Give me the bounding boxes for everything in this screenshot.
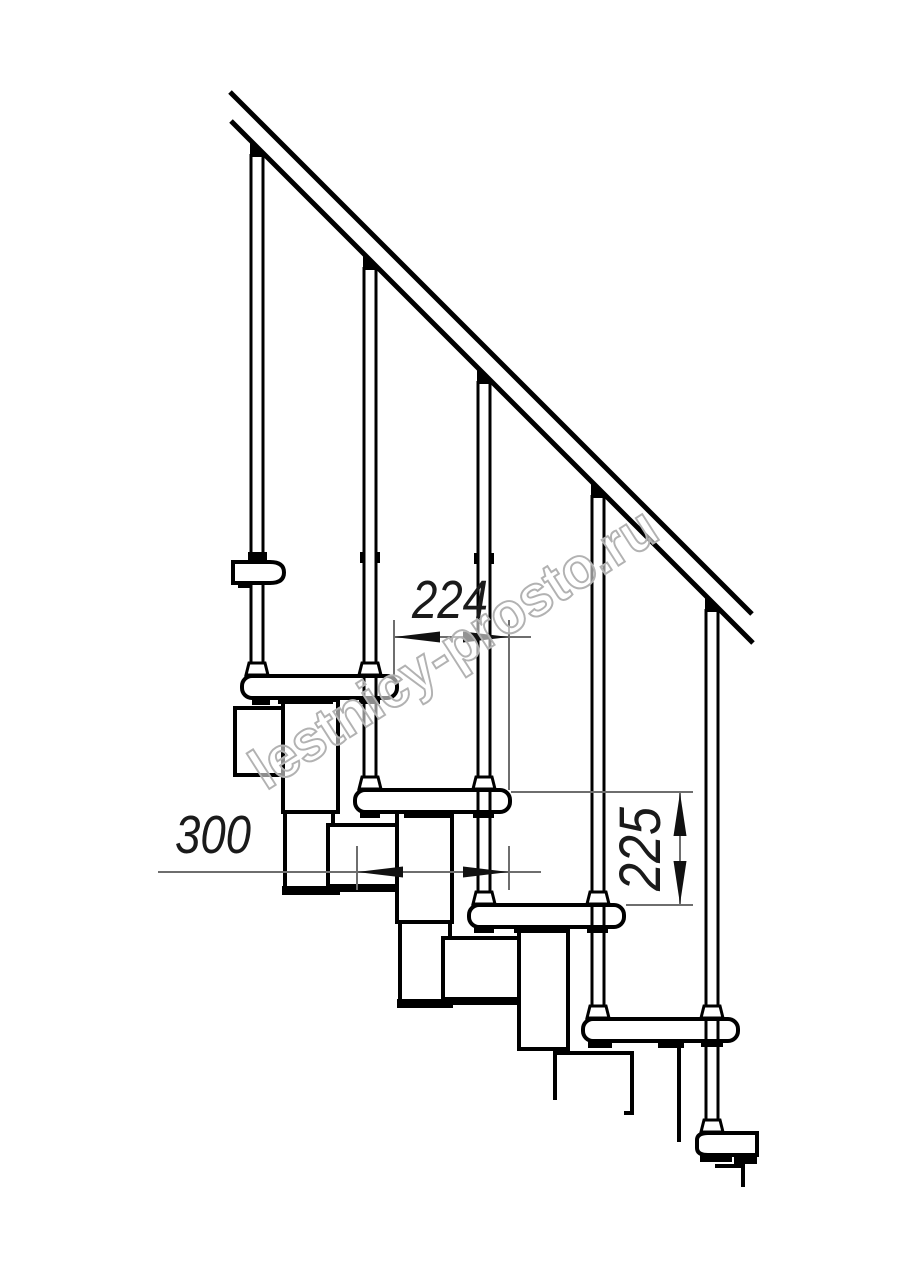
tread-5 <box>697 1133 757 1155</box>
dimension-rise-value: 225 <box>608 806 673 892</box>
collar <box>701 1006 723 1018</box>
baluster-joint <box>360 552 364 563</box>
baluster-joint <box>474 553 478 564</box>
tread-2 <box>355 790 510 812</box>
bracket-top-collar <box>248 552 267 561</box>
module-1-box-seam <box>330 884 404 891</box>
seam <box>514 927 566 933</box>
module-1-connector-box <box>328 825 405 890</box>
seam <box>474 927 494 933</box>
module-2-connector-box <box>443 938 519 1003</box>
bracket-bottom-nub <box>238 583 252 588</box>
tread-3 <box>469 905 624 927</box>
collar <box>473 892 495 904</box>
tread-4 <box>583 1019 738 1041</box>
module-2-neck <box>397 812 452 922</box>
seam <box>700 1153 732 1162</box>
collar <box>701 1120 723 1132</box>
collar <box>246 663 268 675</box>
seam <box>252 698 270 705</box>
seam <box>404 812 452 818</box>
module-2-box-seam <box>445 997 518 1004</box>
baluster-joint <box>377 552 381 563</box>
staircase-elevation-drawing: 224 300 225 lestnicy-prosto.ru <box>0 0 914 1280</box>
dimension-depth-value: 300 <box>175 805 251 865</box>
collar <box>359 777 381 789</box>
collar <box>587 1006 609 1018</box>
staircase-drawing-page: 224 300 225 lestnicy-prosto.ru <box>0 0 914 1280</box>
baluster-joint <box>491 553 495 564</box>
bracket-pill <box>233 562 284 583</box>
module-3-neck <box>519 929 568 1049</box>
seam <box>658 1040 684 1048</box>
seam <box>734 1154 757 1164</box>
module-1-column <box>285 812 333 888</box>
seam <box>360 812 380 818</box>
seam <box>588 1041 612 1048</box>
seam <box>701 1041 723 1047</box>
collar <box>587 892 609 904</box>
collar <box>473 777 495 789</box>
